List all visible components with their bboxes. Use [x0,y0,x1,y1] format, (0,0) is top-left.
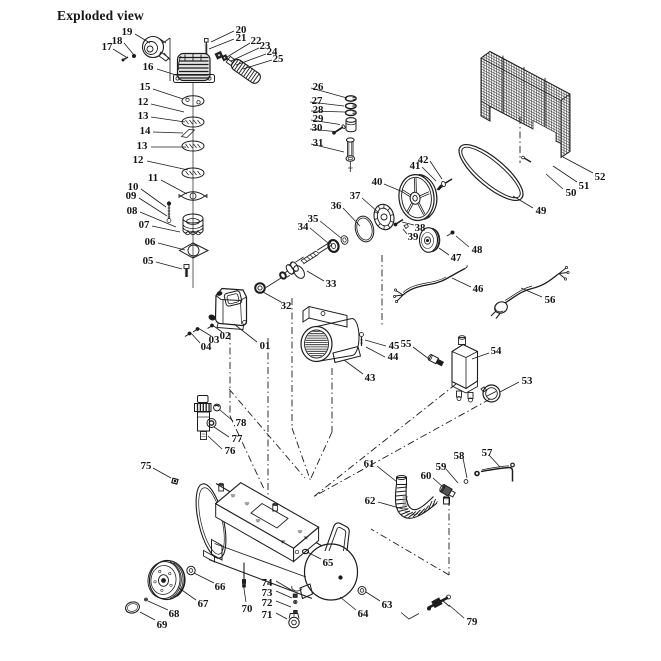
svg-text:Exploded view: Exploded view [57,8,144,23]
svg-text:45: 45 [389,340,400,352]
svg-text:13: 13 [138,110,149,122]
svg-text:66: 66 [215,581,226,593]
svg-text:30: 30 [312,122,323,134]
svg-text:07: 07 [139,219,150,231]
svg-text:39: 39 [408,231,419,243]
svg-text:42: 42 [418,154,429,166]
svg-text:59: 59 [436,461,447,473]
svg-text:70: 70 [242,603,253,615]
svg-text:26: 26 [313,81,324,93]
svg-text:12: 12 [138,96,149,108]
svg-text:79: 79 [467,616,478,628]
svg-text:74: 74 [262,577,273,589]
svg-text:71: 71 [262,609,273,621]
svg-text:55: 55 [401,338,412,350]
svg-text:31: 31 [313,137,324,149]
svg-text:25: 25 [273,53,284,65]
svg-text:02: 02 [220,330,231,342]
svg-text:63: 63 [382,599,393,611]
svg-text:68: 68 [169,608,180,620]
svg-text:78: 78 [236,417,247,429]
svg-text:61: 61 [364,458,375,470]
svg-text:53: 53 [522,375,533,387]
svg-text:12: 12 [133,154,144,166]
svg-text:58: 58 [454,450,465,462]
svg-text:33: 33 [326,278,337,290]
svg-text:13: 13 [137,140,148,152]
svg-text:32: 32 [281,300,292,312]
svg-text:52: 52 [595,171,606,183]
svg-text:05: 05 [143,255,154,267]
svg-text:14: 14 [140,125,151,137]
svg-text:01: 01 [260,340,271,352]
svg-text:44: 44 [388,351,399,363]
svg-text:67: 67 [198,598,209,610]
svg-text:69: 69 [157,619,168,631]
svg-text:47: 47 [451,252,462,264]
svg-text:56: 56 [545,294,556,306]
svg-text:54: 54 [491,345,502,357]
svg-text:16: 16 [143,61,154,73]
svg-text:77: 77 [232,433,243,445]
svg-text:11: 11 [148,172,158,184]
svg-text:40: 40 [372,176,383,188]
svg-text:04: 04 [201,341,212,353]
svg-text:06: 06 [145,236,156,248]
svg-text:51: 51 [579,180,590,192]
svg-text:43: 43 [365,372,376,384]
svg-text:46: 46 [473,283,484,295]
svg-text:65: 65 [323,557,334,569]
svg-text:75: 75 [141,460,152,472]
svg-text:10: 10 [128,181,139,193]
svg-text:19: 19 [122,26,133,38]
svg-text:15: 15 [140,81,151,93]
svg-text:08: 08 [127,205,138,217]
svg-text:62: 62 [365,495,376,507]
svg-text:49: 49 [536,205,547,217]
svg-text:35: 35 [308,213,319,225]
svg-text:50: 50 [566,187,577,199]
svg-text:36: 36 [331,200,342,212]
svg-text:21: 21 [236,32,247,44]
svg-text:60: 60 [421,470,432,482]
svg-text:37: 37 [350,190,361,202]
svg-text:57: 57 [482,447,493,459]
svg-text:76: 76 [225,445,236,457]
svg-text:48: 48 [472,244,483,256]
svg-text:64: 64 [358,608,369,620]
